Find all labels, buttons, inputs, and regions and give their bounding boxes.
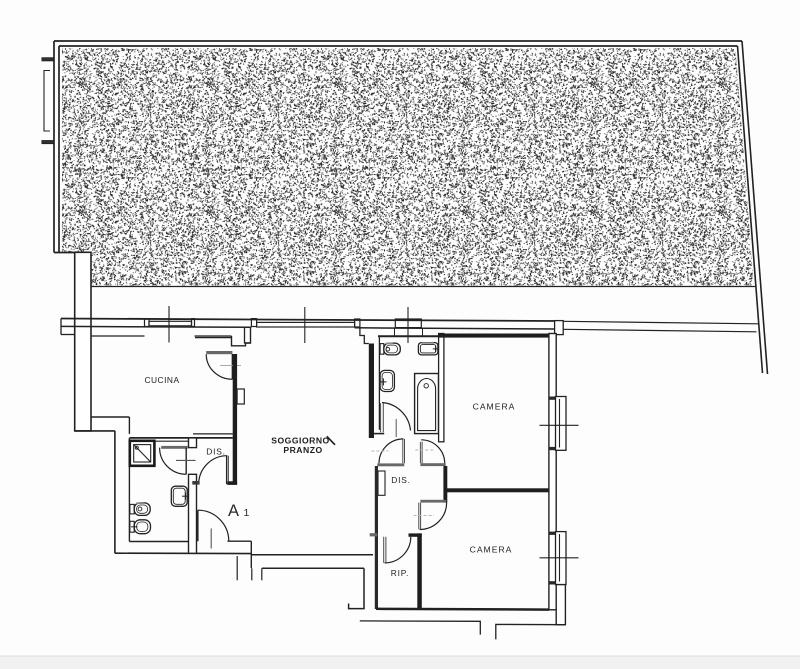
svg-text:A: A [228,502,239,520]
svg-text:CUCINA: CUCINA [144,375,179,385]
svg-text:PRANZO: PRANZO [283,445,322,455]
svg-text:DIS.: DIS. [206,446,226,456]
svg-text:CAMERA: CAMERA [473,402,516,412]
svg-text:RIP.: RIP. [391,568,409,578]
svg-text:CAMERA: CAMERA [470,545,513,555]
svg-text:DIS.: DIS. [391,475,411,485]
svg-text:1: 1 [244,507,250,519]
